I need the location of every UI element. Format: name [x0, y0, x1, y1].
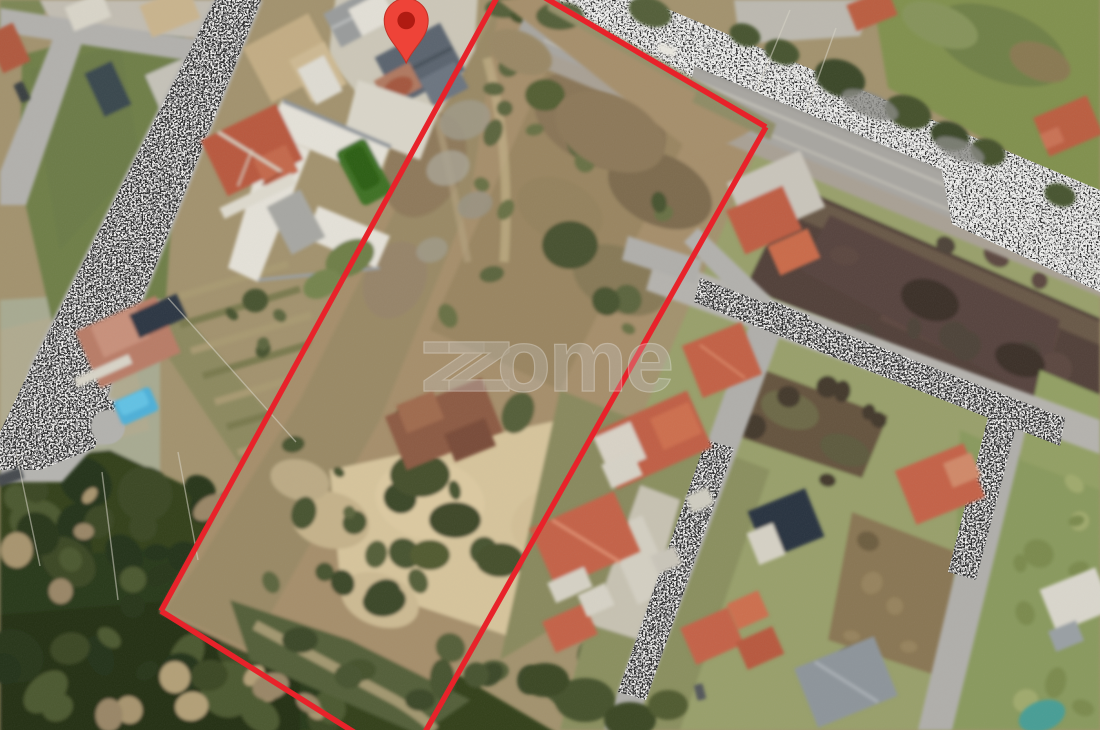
svg-text:ome: ome: [497, 311, 672, 410]
